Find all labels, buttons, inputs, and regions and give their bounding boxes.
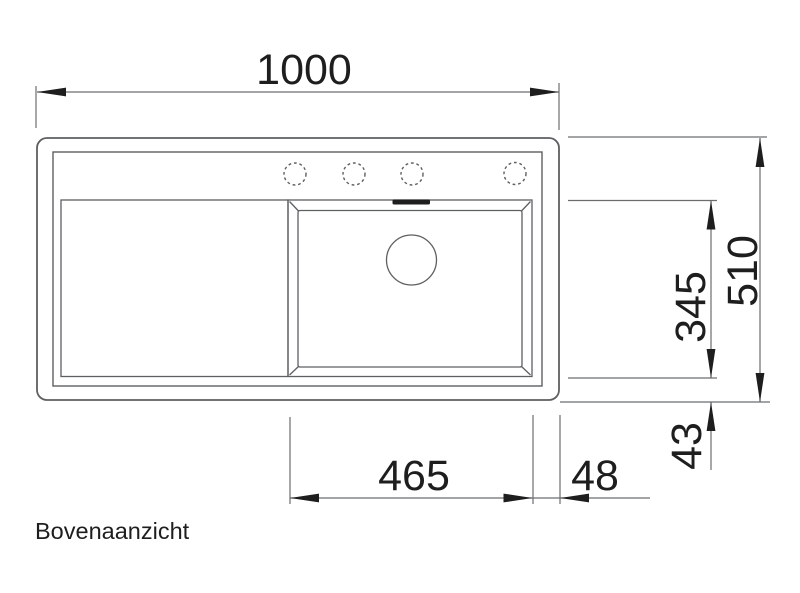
- drainboard: [61, 200, 288, 377]
- arrowhead-up: [707, 201, 716, 230]
- arrowhead-up: [756, 138, 765, 167]
- bowl-chamfer-top-left: [290, 202, 300, 212]
- bowl-inner: [298, 211, 522, 368]
- faucet-holes: [284, 163, 526, 186]
- dim-right-offset-value: 48: [571, 452, 619, 500]
- arrowhead-right: [504, 494, 533, 503]
- sink-body: [37, 138, 559, 400]
- view-label: Bovenaanzicht: [35, 518, 190, 544]
- faucet-hole-1: [284, 163, 306, 185]
- dim-bowl-depth-value: 345: [667, 271, 715, 343]
- dim-total-depth-value: 510: [719, 235, 767, 307]
- dim-total-width: 1000: [36, 46, 559, 130]
- bowl-chamfers: [290, 202, 531, 376]
- dim-bowl-width-value: 465: [378, 452, 450, 500]
- faucet-hole-3: [401, 163, 423, 185]
- dim-total-width-value: 1000: [256, 46, 352, 94]
- arrowhead-left: [37, 88, 66, 97]
- drain-hole: [387, 235, 437, 285]
- faucet-hole-2: [343, 163, 365, 185]
- faucet-hole-4: [504, 163, 526, 185]
- dim-total-depth: 510: [560, 137, 770, 402]
- dim-bowl-depth: 345: [568, 201, 717, 379]
- bowl-outer-rim: [288, 200, 532, 377]
- dim-bottom-offset-value: 43: [663, 422, 711, 470]
- technical-drawing-page: 1000 510 345 43 465 48 Bo: [0, 0, 800, 593]
- bowl-chamfer-bottom-left: [290, 366, 300, 375]
- arrowhead-down: [707, 349, 716, 378]
- arrowhead-down: [756, 373, 765, 402]
- arrowhead-right: [530, 88, 559, 97]
- bowl-chamfer-top-right: [521, 202, 531, 212]
- arrowhead-left: [290, 494, 319, 503]
- overflow-slot: [393, 200, 431, 205]
- sink-top-view-drawing: 1000 510 345 43 465 48 Bo: [0, 0, 800, 593]
- dim-bowl-width: 465: [290, 415, 533, 504]
- dim-bottom-offset: 43: [663, 402, 715, 470]
- dim-right-offset: 48: [533, 415, 650, 504]
- bowl-chamfer-bottom-right: [521, 366, 531, 375]
